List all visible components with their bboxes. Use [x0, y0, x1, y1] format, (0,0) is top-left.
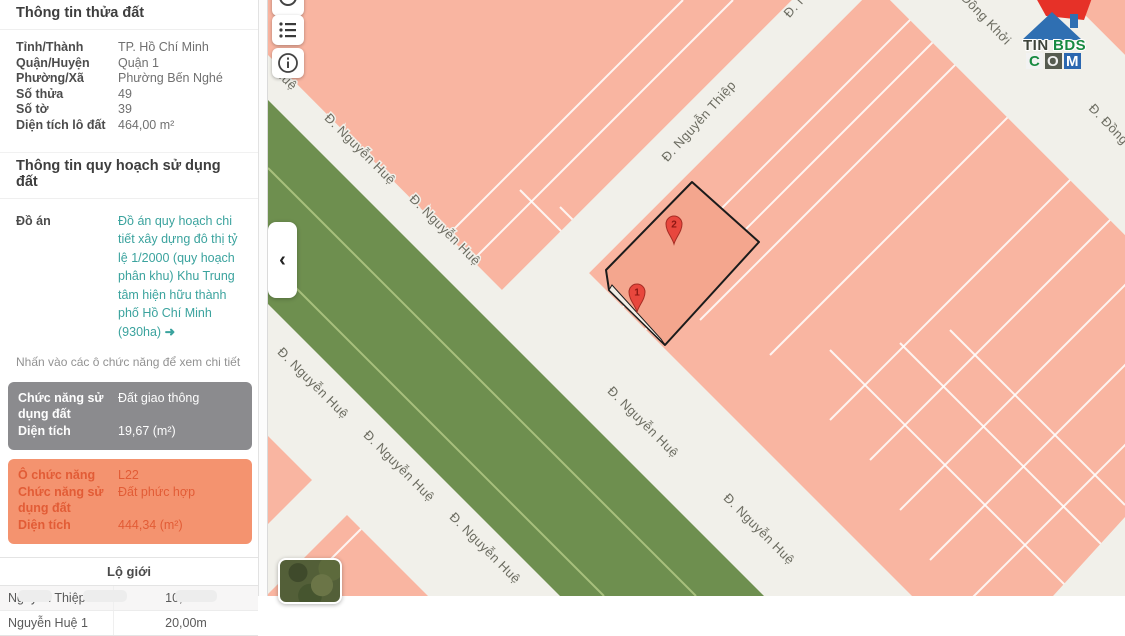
map-tool-top-button[interactable]	[272, 0, 304, 16]
road-name: Nguyễn Huệ 1	[0, 611, 114, 635]
cutoff-element	[18, 590, 52, 602]
map-layers-list-button[interactable]	[272, 15, 304, 45]
logo-text-tin: TIN	[1023, 37, 1049, 54]
field-value: Quận 1	[118, 56, 159, 72]
marker-number: 1	[634, 288, 640, 299]
card-row: Chức năng sử dụng đấtĐất giao thông	[18, 391, 242, 422]
road-width: 20,00m	[114, 611, 258, 635]
field-value: 464,00 m²	[118, 118, 174, 134]
cutoff-element	[83, 590, 127, 602]
do-an-label: Đồ án	[16, 212, 118, 342]
sidebar-scrollbar[interactable]	[258, 0, 268, 596]
field-value: 49	[118, 87, 132, 103]
road-table-title: Lộ giới	[0, 558, 258, 586]
do-an-row: Đồ án Đồ án quy hoạch chi tiết xây dựng …	[0, 199, 258, 342]
card-row: Diện tích444,34 (m²)	[18, 518, 242, 534]
circle-icon	[277, 0, 299, 13]
card-row: Chức năng sử dụng đấtĐất phức hợp	[18, 485, 242, 516]
card-row: Diện tích19,67 (m²)	[18, 424, 242, 440]
logo-letter-m: M	[1066, 53, 1079, 70]
table-row: Nguyễn Huệ 1 20,00m	[0, 611, 258, 635]
field-label: Số thửa	[16, 87, 118, 103]
field-value: Phường Bến Nghé	[118, 71, 223, 87]
field-label: Số tờ	[16, 102, 118, 118]
parcel-info-title: Thông tin thửa đất	[0, 0, 258, 30]
field-row: Diện tích lô đất464,00 m²	[16, 118, 248, 134]
card-label: Chức năng sử dụng đất	[18, 391, 118, 422]
card-value: 444,34 (m²)	[118, 518, 183, 534]
cutoff-element	[175, 590, 217, 602]
card-label: Chức năng sử dụng đất	[18, 485, 118, 516]
function-card-road[interactable]: Chức năng sử dụng đấtĐất giao thông Diện…	[8, 382, 252, 450]
card-value: Đất giao thông	[118, 391, 199, 422]
logo-text-bds: BDS	[1053, 37, 1086, 54]
card-value: Đất phức hợp	[118, 485, 195, 516]
field-label: Phường/Xã	[16, 71, 118, 87]
field-row: Số thửa49	[16, 87, 248, 103]
field-label: Tỉnh/Thành	[16, 40, 118, 56]
list-icon	[278, 21, 298, 39]
house-logo-icon: TIN BDS C O M	[1016, 0, 1096, 70]
do-an-link[interactable]: Đồ án quy hoạch chi tiết xây dựng đô thị…	[118, 214, 238, 339]
field-row: Quận/HuyệnQuận 1	[16, 56, 248, 72]
function-card-mixed-use[interactable]: Ô chức năngL22 Chức năng sử dụng đấtĐất …	[8, 459, 252, 544]
chevron-left-icon: ‹	[279, 249, 286, 272]
arrow-right-icon[interactable]: ➜	[165, 325, 175, 339]
card-value: 19,67 (m²)	[118, 424, 176, 440]
tinbds-logo: TIN BDS C O M	[1016, 0, 1096, 70]
field-value: 39	[118, 102, 132, 118]
field-value: TP. Hồ Chí Minh	[118, 40, 209, 56]
logo-letter-o: O	[1047, 53, 1059, 70]
logo-letter-c: C	[1029, 53, 1040, 70]
marker-number: 2	[671, 220, 677, 231]
card-value: L22	[118, 468, 139, 484]
info-sidebar: Thông tin thửa đất Tỉnh/ThànhTP. Hồ Chí …	[0, 0, 258, 596]
parcel-fields: Tỉnh/ThànhTP. Hồ Chí Minh Quận/HuyệnQuận…	[0, 30, 258, 142]
card-label: Diện tích	[18, 518, 118, 534]
field-label: Quận/Huyện	[16, 56, 118, 72]
field-label: Diện tích lô đất	[16, 118, 118, 134]
hint-note: Nhấn vào các ô chức năng để xem chi tiết	[0, 341, 258, 369]
planning-info-title: Thông tin quy hoạch sử dụng đất	[0, 152, 258, 199]
map-info-button[interactable]	[272, 48, 304, 78]
field-row: Tỉnh/ThànhTP. Hồ Chí Minh	[16, 40, 248, 56]
field-row: Số tờ39	[16, 102, 248, 118]
satellite-layer-thumbnail[interactable]	[278, 558, 342, 604]
card-label: Diện tích	[18, 424, 118, 440]
card-row: Ô chức năngL22	[18, 468, 242, 484]
card-label: Ô chức năng	[18, 468, 118, 484]
sidebar-collapse-button[interactable]: ‹	[268, 222, 297, 298]
info-icon	[277, 52, 299, 74]
field-row: Phường/XãPhường Bến Nghé	[16, 71, 248, 87]
